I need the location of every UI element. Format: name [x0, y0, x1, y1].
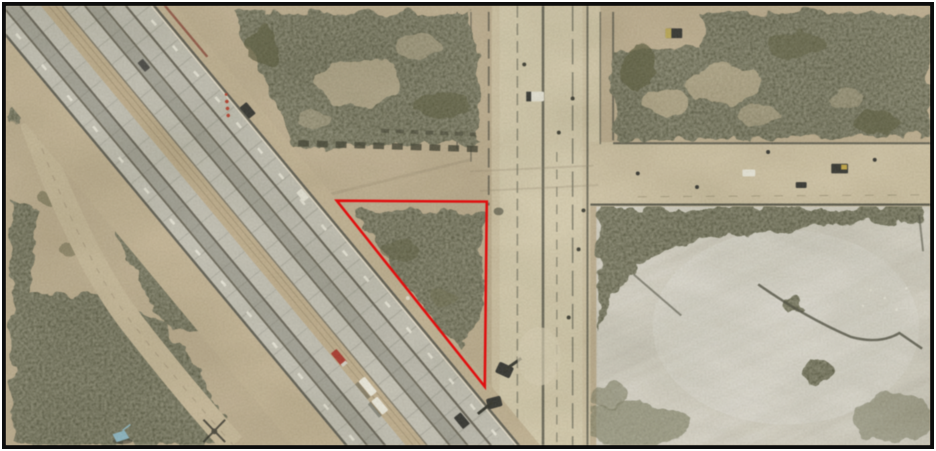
photo-texture [6, 6, 930, 445]
page [0, 0, 936, 451]
aerial-photo [6, 6, 930, 445]
aerial-image-frame [2, 2, 934, 449]
